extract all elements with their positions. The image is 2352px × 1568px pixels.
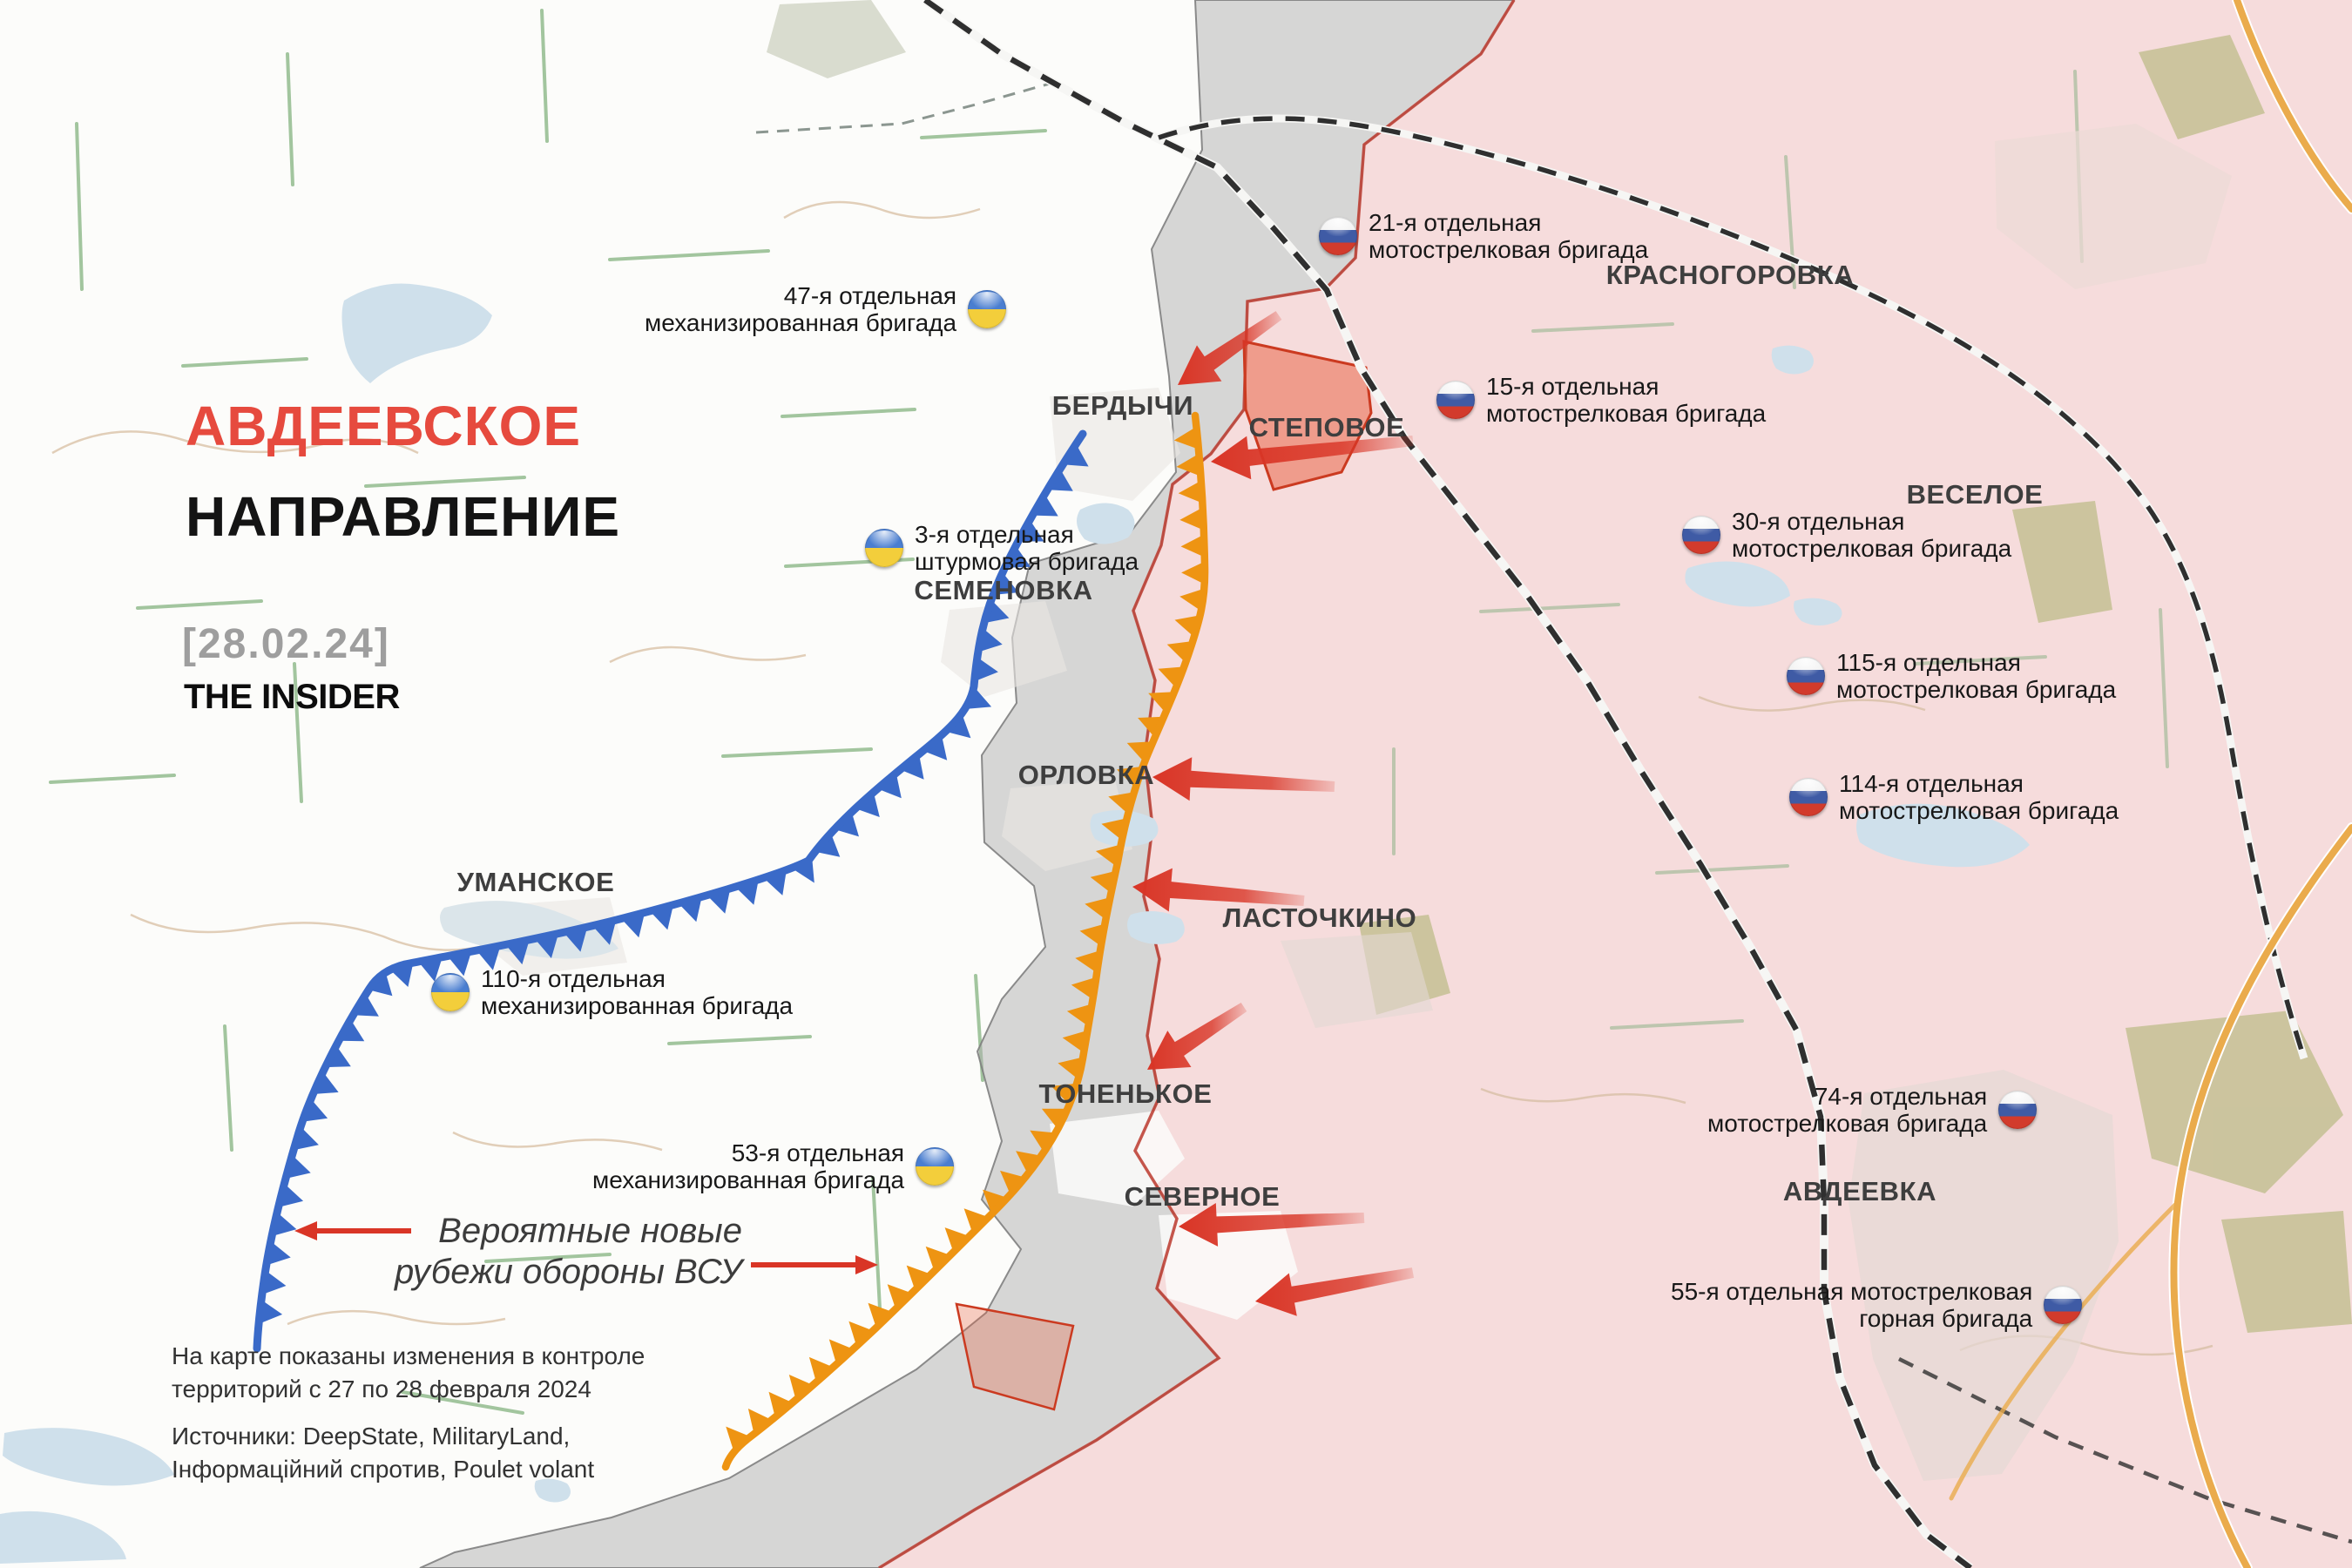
settlement-label-lastochkyne: ЛАСТОЧКИНО — [1223, 902, 1417, 934]
brigade-name: 15-я отдельная мотострелковая бригада — [1486, 373, 1766, 428]
settlement-label-berdychi: БЕРДЫЧИ — [1052, 390, 1193, 422]
ukraine-flag-icon — [865, 529, 903, 567]
russia-flag-icon — [1789, 778, 1828, 816]
settlement-label-krasnohorivka: КРАСНОГОРОВКА — [1606, 260, 1855, 291]
brigade-ua-110: 110-я отдельная механизированная бригада — [431, 965, 793, 1020]
settlement-label-stepove: СТЕПОВОЕ — [1249, 412, 1405, 443]
russia-flag-icon — [1787, 657, 1825, 695]
settlement-label-umanske: УМАНСКОЕ — [457, 867, 615, 898]
settlement-label-severne: СЕВЕРНОЕ — [1125, 1181, 1281, 1213]
brigade-name: 110-я отдельная механизированная бригада — [481, 965, 793, 1020]
brigade-name: 114-я отдельная мотострелковая бригада — [1839, 770, 2119, 825]
brigade-name: 21-я отдельная мотострелковая бригада — [1369, 209, 1648, 264]
avdiivka-direction-map: АВДЕЕВСКОЕ НАПРАВЛЕНИЕ [28.02.24] THE IN… — [0, 0, 2352, 1568]
ukraine-flag-icon — [968, 290, 1006, 328]
settlement-label-tonenke: ТОНЕНЬКОЕ — [1038, 1078, 1212, 1110]
brigade-ru-21: 21-я отдельная мотострелковая бригада — [1319, 209, 1648, 264]
map-title-accent: АВДЕЕВСКОЕ — [186, 394, 581, 458]
brigade-ua-53: 53-я отдельная механизированная бригада — [592, 1139, 954, 1194]
map-note: На карте показаны изменения в контроле т… — [172, 1340, 645, 1405]
russia-flag-icon — [1682, 516, 1720, 554]
brigade-name: 55-я отдельная мотострелковая горная бри… — [1671, 1278, 2032, 1333]
ukraine-flag-icon — [916, 1147, 954, 1186]
map-date: [28.02.24] — [182, 620, 390, 668]
brigade-name: 53-я отдельная механизированная бригада — [592, 1139, 904, 1194]
map-sources: Источники: DeepState, MilitaryLand, Інфо… — [172, 1420, 594, 1485]
map-title: НАПРАВЛЕНИЕ — [186, 484, 620, 549]
brigade-name: 47-я отдельная механизированная бригада — [645, 282, 956, 337]
brigade-name: 74-я отдельная мотострелковая бригада — [1707, 1083, 1987, 1138]
settlement-label-semenivka: СЕМЕНОВКА — [914, 575, 1092, 606]
settlement-label-vesele: ВЕСЕЛОЕ — [1907, 479, 2044, 510]
ukraine-flag-icon — [431, 973, 470, 1011]
brigade-ru-15: 15-я отдельная мотострелковая бригада — [1436, 373, 1766, 428]
russia-flag-icon — [2044, 1286, 2082, 1324]
russia-flag-icon — [1319, 217, 1357, 255]
brigade-name: 30-я отдельная мотострелковая бригада — [1732, 508, 2011, 563]
brigade-ua-47: 47-я отдельная механизированная бригада — [645, 282, 1006, 337]
russia-flag-icon — [1998, 1091, 2037, 1129]
brigade-ru-114: 114-я отдельная мотострелковая бригада — [1789, 770, 2119, 825]
brigade-ru-115: 115-я отдельная мотострелковая бригада — [1787, 649, 2116, 704]
brigade-ru-55: 55-я отдельная мотострелковая горная бри… — [1671, 1278, 2082, 1333]
brigade-ru-74: 74-я отдельная мотострелковая бригада — [1707, 1083, 2037, 1138]
probable-lines-annotation: Вероятные новые рубежи обороны ВСУ — [383, 1211, 742, 1293]
brigade-ru-30: 30-я отдельная мотострелковая бригада — [1682, 508, 2011, 563]
settlement-label-orlivka: ОРЛОВКА — [1018, 760, 1155, 791]
brigade-name: 3-я отдельная штурмовая бригада — [915, 521, 1139, 576]
brigade-name: 115-я отдельная мотострелковая бригада — [1836, 649, 2116, 704]
settlement-label-avdiivka: АВДЕЕВКА — [1783, 1176, 1936, 1207]
russia-flag-icon — [1436, 381, 1475, 419]
brigade-ua-3: 3-я отдельная штурмовая бригада — [865, 521, 1139, 576]
the-insider-logo: THE INSIDER — [184, 678, 400, 717]
